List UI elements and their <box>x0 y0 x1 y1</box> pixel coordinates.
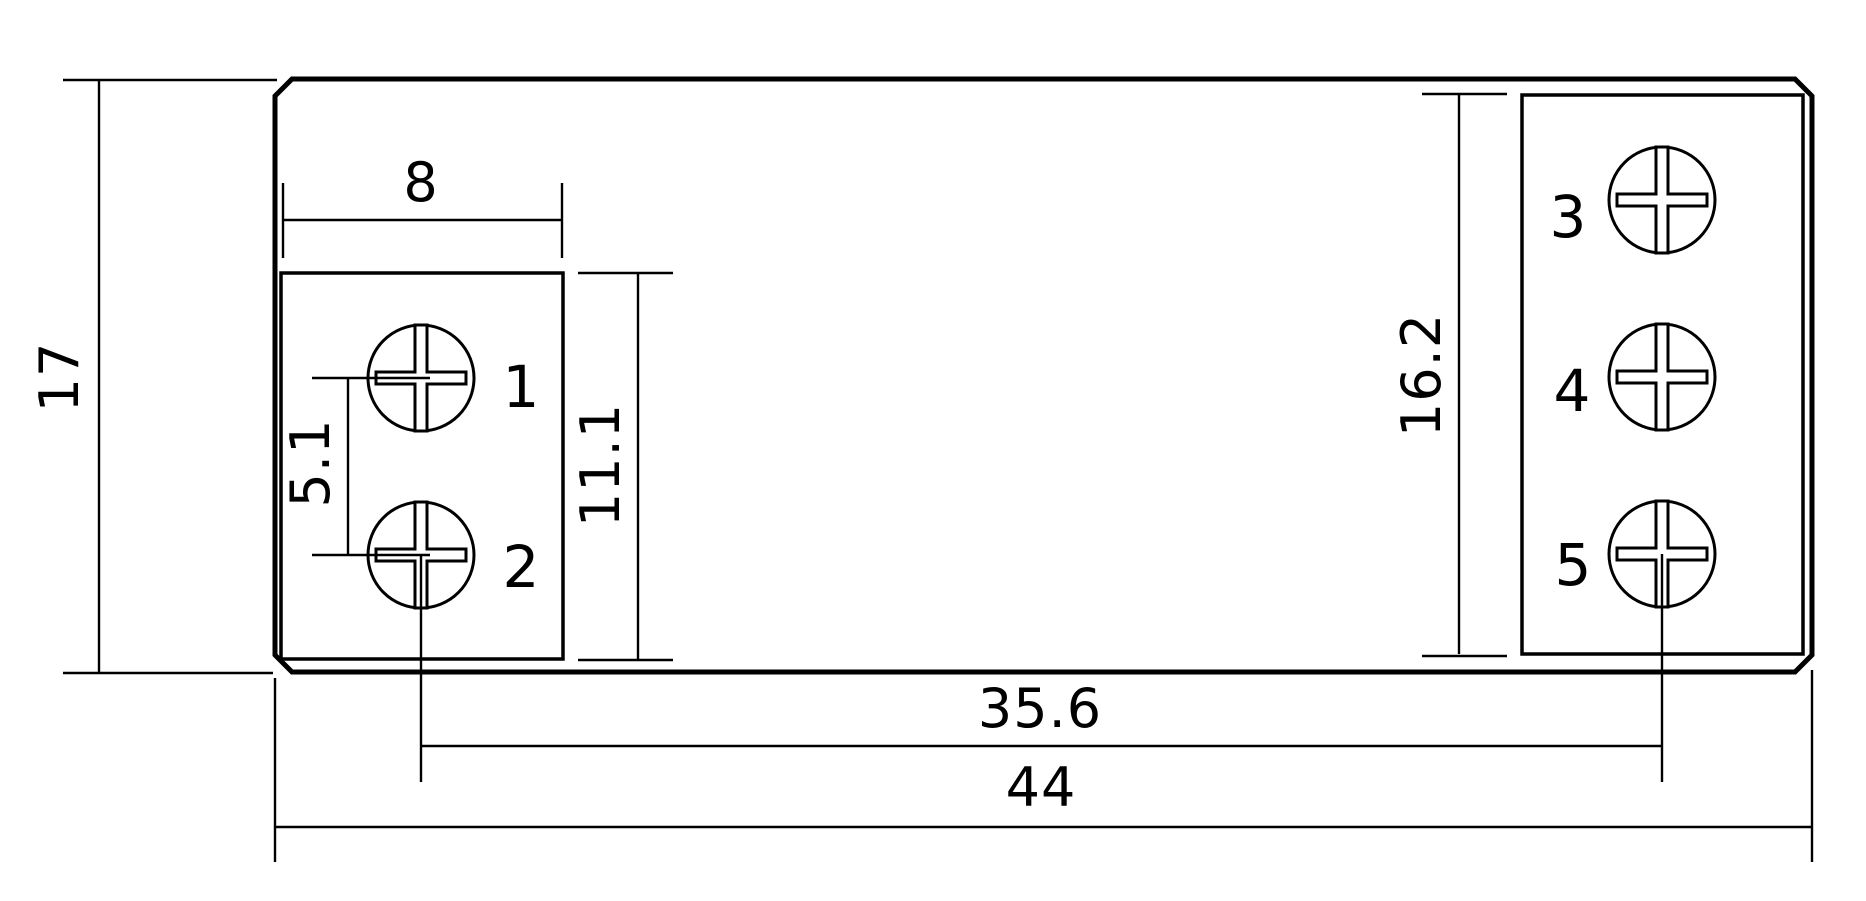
dim-right-box-height-label: 16.2 <box>1390 313 1453 437</box>
terminal-4-label: 4 <box>1554 357 1591 425</box>
drawing-canvas: 17 8 5.1 11.1 16.2 35.6 <box>0 0 1866 901</box>
dim-overall-width-label: 44 <box>1006 756 1077 819</box>
terminal-3-label: 3 <box>1550 183 1587 251</box>
terminal-5-label: 5 <box>1555 531 1592 599</box>
dim-left-box-width-label: 8 <box>403 151 438 214</box>
dim-overall-height-label: 17 <box>28 342 91 413</box>
screw-4 <box>1609 324 1715 430</box>
terminal-1-label: 1 <box>503 353 540 421</box>
screw-3 <box>1609 147 1715 253</box>
dim-screw-span-label: 35.6 <box>978 677 1102 740</box>
dim-left-box-height-label: 11.1 <box>569 403 632 527</box>
terminal-2-label: 2 <box>503 533 540 601</box>
dimension-drawing: 17 8 5.1 11.1 16.2 35.6 <box>0 0 1866 901</box>
dim-screw-pitch-label: 5.1 <box>279 419 342 508</box>
